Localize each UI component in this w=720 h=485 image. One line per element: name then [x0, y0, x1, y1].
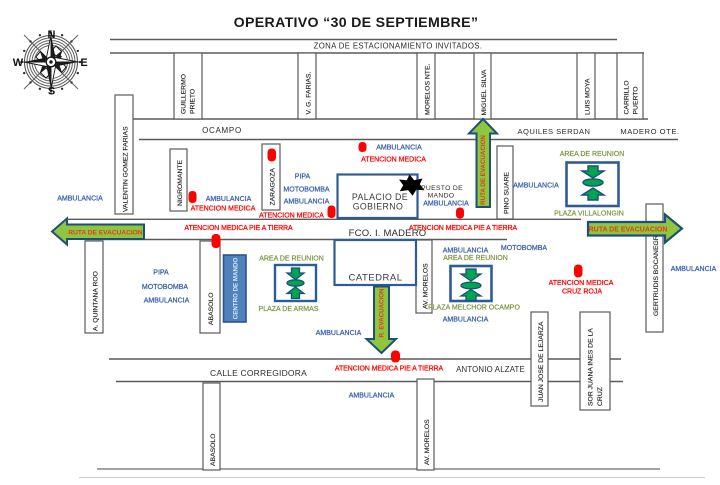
svg-text:GOBIERNO: GOBIERNO — [353, 202, 404, 212]
svg-text:AREA DE REUNION: AREA DE REUNION — [560, 151, 625, 158]
svg-text:ZARAGOZA: ZARAGOZA — [269, 168, 276, 206]
svg-text:MOTOBOMBA: MOTOBOMBA — [283, 187, 329, 194]
svg-text:OCAMPO: OCAMPO — [202, 126, 242, 135]
svg-text:ZONA DE ESTACIONAMIENTO INVI: ZONA DE ESTACIONAMIENTO INVITADOS. — [314, 42, 483, 51]
svg-text:ATENCION MEDICA: ATENCION MEDICA — [191, 206, 256, 213]
svg-text:AMBULANCIA: AMBULANCIA — [206, 196, 252, 203]
svg-text:R. EVACUACION: R. EVACUACION — [379, 288, 386, 338]
svg-text:RUTA DE EVACUACION: RUTA DE EVACUACION — [68, 230, 142, 237]
svg-text:ABASOLO: ABASOLO — [208, 293, 215, 326]
svg-text:AREA DE REUNION: AREA DE REUNION — [443, 255, 508, 262]
svg-text:GUILLERMO: GUILLERMO — [180, 74, 187, 114]
svg-text:AMBULANCIA: AMBULANCIA — [376, 145, 422, 152]
svg-text:GERTRUDIS BOCANEGRA: GERTRUDIS BOCANEGRA — [653, 230, 660, 316]
svg-text:AMBULANCIA: AMBULANCIA — [513, 183, 559, 190]
svg-text:S: S — [48, 86, 55, 98]
svg-text:ANTONIO ALZATE: ANTONIO ALZATE — [456, 365, 525, 374]
svg-text:CENTRO DE MANDO: CENTRO DE MANDO — [233, 258, 240, 320]
svg-text:LUIS MOYA: LUIS MOYA — [584, 78, 591, 115]
svg-text:ATENCION MEDICA: ATENCION MEDICA — [549, 280, 614, 287]
svg-text:V. G. FARIAS.: V. G. FARIAS. — [305, 72, 312, 115]
svg-text:AMBULANCIA: AMBULANCIA — [144, 298, 190, 305]
svg-text:AMBULANCIA: AMBULANCIA — [671, 266, 717, 273]
svg-text:ATENCION MEDICA PIE A TIERRA: ATENCION MEDICA PIE A TIERRA — [335, 366, 444, 373]
svg-text:PLAZA DE ARMAS: PLAZA DE ARMAS — [259, 306, 319, 313]
svg-text:MORELOS NTE.: MORELOS NTE. — [424, 64, 431, 115]
svg-text:E: E — [80, 57, 87, 69]
svg-text:MANDO: MANDO — [428, 193, 455, 200]
svg-text:AMBULANCIA: AMBULANCIA — [284, 199, 330, 206]
svg-text:AMBULANCIA: AMBULANCIA — [316, 330, 362, 337]
svg-text:NIGROMANTE: NIGROMANTE — [177, 159, 184, 206]
svg-text:PIPA: PIPA — [153, 270, 169, 277]
svg-text:CRUZ: CRUZ — [597, 387, 604, 406]
svg-text:CALLE CORREGIDORA: CALLE CORREGIDORA — [210, 368, 307, 378]
svg-text:CATEDRAL: CATEDRAL — [349, 273, 403, 284]
svg-text:N: N — [48, 29, 56, 41]
svg-text:PLAZA MELCHOR OCAMPO: PLAZA MELCHOR OCAMPO — [428, 305, 520, 312]
svg-text:AREA DE REUNION: AREA DE REUNION — [259, 256, 324, 263]
svg-text:ATENCION MEDICA: ATENCION MEDICA — [361, 157, 426, 164]
svg-text:PIPA: PIPA — [295, 174, 311, 181]
svg-text:AV. MORELOS: AV. MORELOS — [424, 419, 431, 465]
svg-text:AQUILES SERDAN: AQUILES SERDAN — [518, 127, 591, 136]
svg-text:AMBULANCIA: AMBULANCIA — [423, 201, 469, 208]
svg-text:AMBULANCIA: AMBULANCIA — [349, 393, 395, 400]
svg-text:PINO SUARE: PINO SUARE — [503, 172, 510, 214]
svg-text:PUERTO: PUERTO — [632, 86, 639, 114]
svg-text:AV. MORELOS: AV. MORELOS — [422, 263, 429, 309]
svg-text:VALENTIN GOMEZ FARIAS: VALENTIN GOMEZ FARIAS — [122, 126, 129, 212]
svg-text:MIGUEL SILVA: MIGUEL SILVA — [481, 69, 488, 115]
svg-text:RUTA DE EVACUACION: RUTA DE EVACUACION — [589, 227, 668, 234]
svg-text:A. QUINTANA ROO: A. QUINTANA ROO — [92, 271, 99, 331]
svg-text:W: W — [13, 57, 24, 69]
svg-text:JUAN JOSE DE LEJARZA: JUAN JOSE DE LEJARZA — [538, 321, 545, 402]
svg-text:RUTA DE EVACUACION: RUTA DE EVACUACION — [480, 135, 487, 205]
svg-text:MOTOBOMBA: MOTOBOMBA — [142, 284, 188, 291]
svg-text:CARRILLO: CARRILLO — [623, 81, 630, 115]
svg-text:ATENCION MEDICA PIE A TIERRA: ATENCION MEDICA PIE A TIERRA — [184, 225, 293, 232]
svg-text:CRUZ ROJA: CRUZ ROJA — [562, 289, 602, 296]
svg-text:PALACIO DE: PALACIO DE — [352, 192, 408, 202]
svg-text:SOR JUANA INES DE LA: SOR JUANA INES DE LA — [587, 328, 594, 406]
svg-text:AMBULANCIA: AMBULANCIA — [57, 196, 103, 203]
svg-text:PRIETO: PRIETO — [189, 89, 196, 114]
svg-text:ATENCION MEDICA PIE A TIERRA: ATENCION MEDICA PIE A TIERRA — [409, 225, 518, 232]
svg-text:ATENCION MEDICA: ATENCION MEDICA — [259, 213, 324, 220]
svg-text:AMBULANCIA: AMBULANCIA — [443, 317, 489, 324]
svg-text:AMBULANCIA: AMBULANCIA — [443, 248, 489, 255]
svg-text:OPERATIVO “30 DE SEPTIEMBRE”: OPERATIVO “30 DE SEPTIEMBRE” — [234, 15, 479, 31]
svg-text:ABASOLO: ABASOLO — [210, 434, 217, 467]
svg-text:PUESTO DE: PUESTO DE — [421, 185, 463, 192]
svg-text:PLAZA VILLALONGIN: PLAZA VILLALONGIN — [554, 211, 624, 218]
svg-text:MOTOBOMBA: MOTOBOMBA — [501, 245, 547, 252]
svg-text:MADERO OTE.: MADERO OTE. — [620, 127, 679, 136]
